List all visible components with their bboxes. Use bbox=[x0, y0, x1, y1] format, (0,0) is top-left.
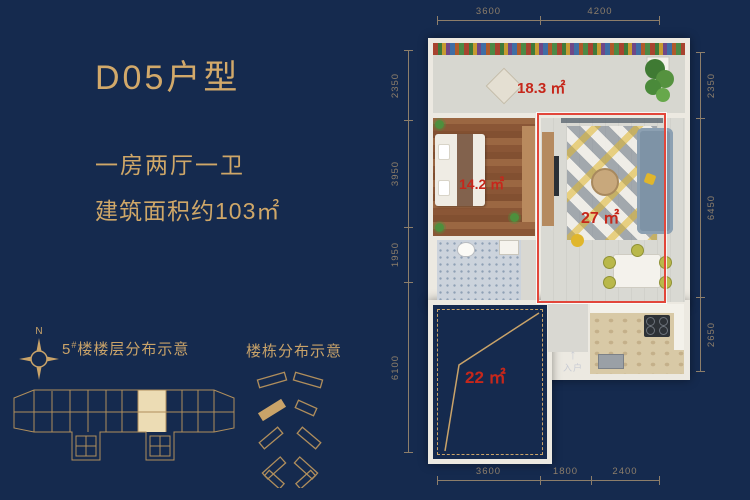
dim-label-right-3: 2650 bbox=[704, 297, 720, 371]
highlighted-zone-outline bbox=[537, 113, 666, 303]
dim-tick bbox=[437, 16, 438, 25]
void-area-label: 22 ㎡ bbox=[465, 363, 506, 388]
stove bbox=[644, 315, 670, 337]
dim-label-top-1: 3600 bbox=[437, 6, 540, 17]
kitchen-counter bbox=[674, 304, 684, 350]
void-room: 22 ㎡ bbox=[433, 305, 547, 459]
dim-tick bbox=[404, 50, 413, 51]
pillow bbox=[438, 144, 450, 160]
compass-icon: N bbox=[16, 322, 62, 382]
dim-label-bottom-3: 2400 bbox=[591, 466, 659, 477]
dim-tick bbox=[659, 16, 660, 25]
dim-tick bbox=[696, 371, 705, 372]
entry-floor bbox=[548, 304, 588, 352]
dim-line-right bbox=[700, 52, 701, 372]
dim-tick bbox=[591, 476, 592, 485]
dim-label-left-4: 6100 bbox=[388, 282, 404, 452]
dim-label-bottom-1: 3600 bbox=[437, 466, 540, 477]
vanity-sink bbox=[499, 240, 519, 255]
dim-tick bbox=[540, 476, 541, 485]
dim-label-right-1: 2350 bbox=[704, 52, 720, 118]
dim-line-left bbox=[408, 50, 409, 453]
dim-tick bbox=[437, 476, 438, 485]
plant-icon bbox=[435, 223, 444, 232]
dim-label-right-2: 6450 bbox=[704, 118, 720, 297]
layout-description: 一房两厅一卫 bbox=[95, 146, 245, 180]
burner-icon bbox=[646, 326, 655, 335]
floor-plate-diagram bbox=[8, 380, 240, 476]
highlighted-building bbox=[259, 400, 285, 421]
dim-tick bbox=[659, 476, 660, 485]
plant-icon bbox=[435, 120, 444, 129]
dim-label-left-3: 1950 bbox=[388, 227, 404, 282]
dim-line-bottom bbox=[437, 480, 660, 481]
dim-label-left-1: 2350 bbox=[388, 50, 404, 120]
kitchen-counter bbox=[590, 304, 684, 313]
kitchen-room bbox=[590, 304, 684, 374]
bed bbox=[435, 134, 485, 206]
entry-marker: ↑ 入户 bbox=[556, 348, 590, 374]
dim-label-left-2: 3950 bbox=[388, 120, 404, 227]
terrace-room: 18.3 ㎡ bbox=[433, 43, 685, 113]
burner-icon bbox=[659, 317, 668, 326]
entry-arrow-icon: ↑ bbox=[556, 348, 590, 361]
bedroom-area-label: 14.2 ㎡ bbox=[459, 174, 504, 194]
building-number: 5 bbox=[62, 341, 71, 358]
dim-label-bottom-2: 1800 bbox=[540, 466, 591, 477]
dim-label-top-2: 4200 bbox=[540, 6, 660, 17]
dim-tick bbox=[404, 120, 413, 121]
floor-distribution-text: 楼楼层分布示意 bbox=[77, 341, 189, 358]
desk bbox=[522, 126, 535, 222]
plant-icon bbox=[510, 213, 519, 222]
built-area-description: 建筑面积约103㎡ bbox=[95, 192, 280, 226]
building-footprints-diagram bbox=[250, 364, 330, 488]
burner-icon bbox=[646, 317, 655, 326]
burner-icon bbox=[659, 326, 668, 335]
dim-tick bbox=[404, 452, 413, 453]
dim-line-top bbox=[437, 20, 660, 21]
hallway-floor bbox=[521, 240, 537, 300]
dim-tick bbox=[540, 16, 541, 25]
toilet bbox=[457, 242, 475, 257]
dim-tick bbox=[404, 282, 413, 283]
pillow bbox=[438, 180, 450, 196]
entry-label: 入户 bbox=[556, 361, 590, 374]
bed-blanket bbox=[457, 134, 473, 206]
page-title: D05户型 bbox=[95, 50, 240, 99]
compass-north-letter: N bbox=[35, 326, 42, 337]
kitchen-sink bbox=[598, 354, 624, 369]
terrace-area-label: 18.3 ㎡ bbox=[517, 77, 565, 98]
building-distribution-label: 楼栋分布示意 bbox=[246, 340, 342, 361]
potted-plant-icon bbox=[635, 47, 677, 109]
bathroom-room bbox=[437, 240, 521, 300]
floor-distribution-label: 5#楼楼层分布示意 bbox=[62, 338, 189, 359]
dim-tick bbox=[404, 227, 413, 228]
bedroom-room: 14.2 ㎡ bbox=[433, 118, 535, 236]
